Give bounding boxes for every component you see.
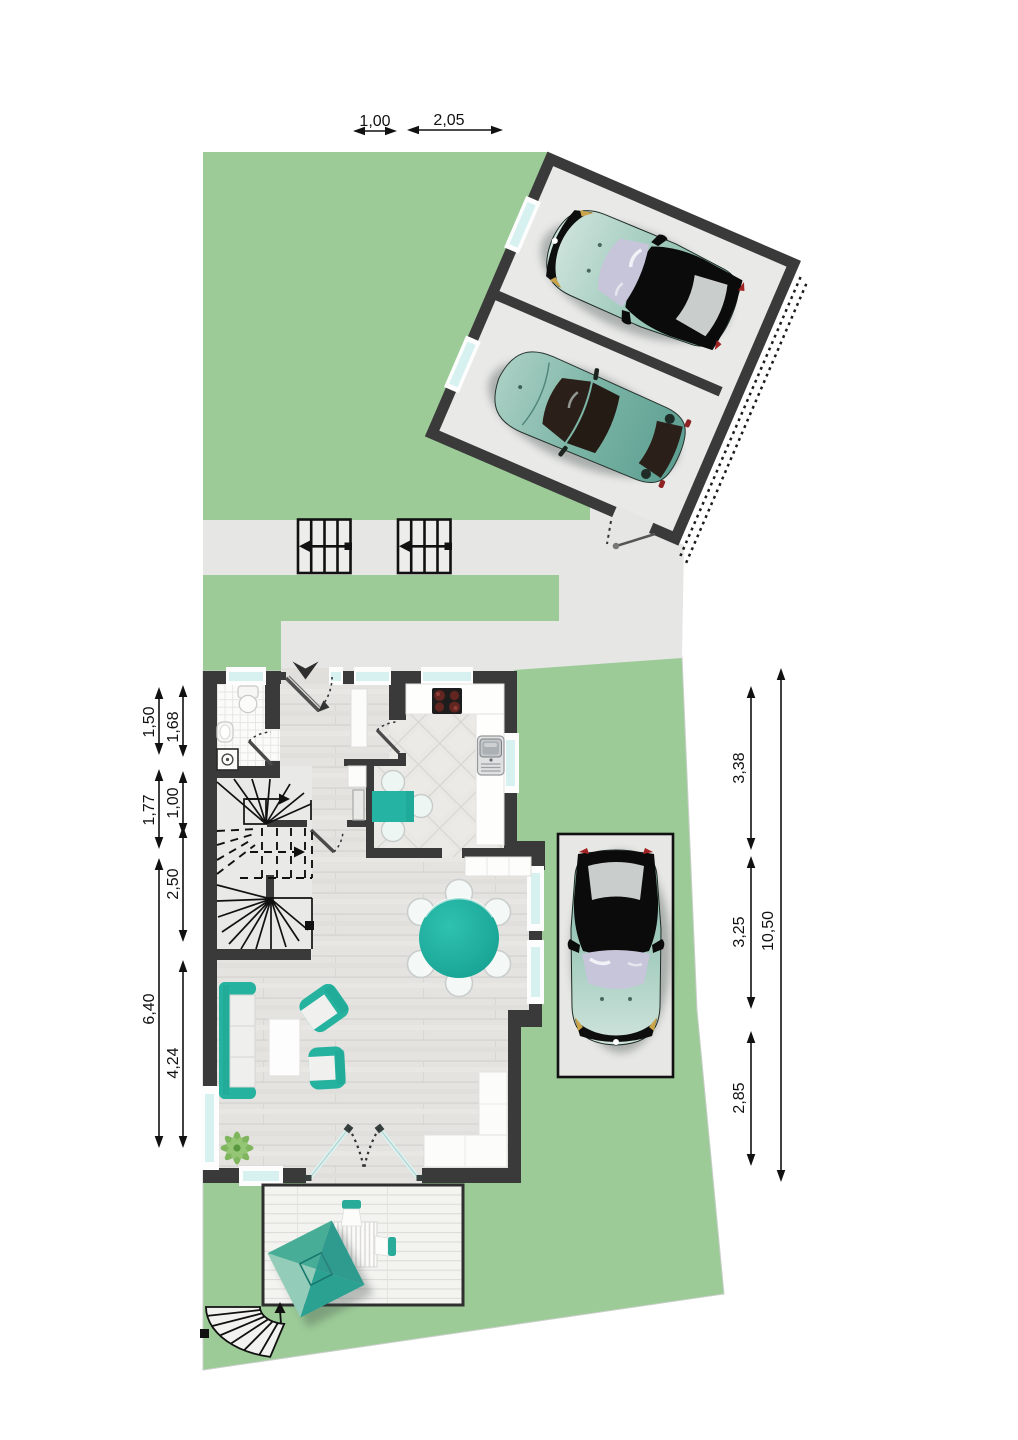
svg-text:4,24: 4,24 [165, 1047, 182, 1078]
svg-text:10,50: 10,50 [760, 911, 777, 951]
svg-text:1,00: 1,00 [359, 113, 390, 130]
svg-text:6,40: 6,40 [141, 993, 158, 1024]
svg-text:3,38: 3,38 [731, 752, 748, 783]
svg-text:2,05: 2,05 [433, 112, 464, 129]
svg-text:2,85: 2,85 [731, 1082, 748, 1113]
svg-text:1,50: 1,50 [141, 706, 158, 737]
svg-text:1,77: 1,77 [141, 794, 158, 825]
svg-text:3,25: 3,25 [731, 916, 748, 947]
svg-text:1,00: 1,00 [165, 787, 182, 818]
svg-text:1,68: 1,68 [165, 711, 182, 742]
svg-text:2,50: 2,50 [165, 868, 182, 899]
